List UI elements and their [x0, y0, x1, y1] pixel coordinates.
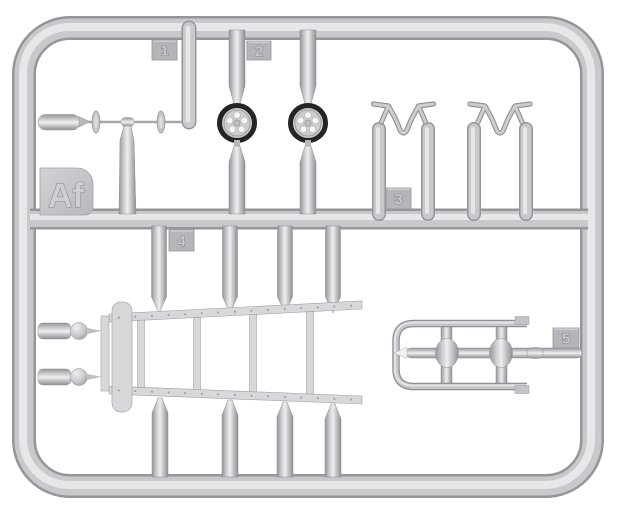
- tag-label: 1: [160, 43, 168, 60]
- wheel-hole: [305, 112, 312, 119]
- clip-part-2: [470, 104, 530, 214]
- wheel-hole: [300, 126, 307, 133]
- pin-gate: [87, 374, 102, 380]
- sprue-illustration: 1 2 3 4 5 Af: [0, 0, 620, 517]
- ladder-rung: [138, 320, 145, 388]
- wheel-hub: [305, 120, 311, 126]
- ball-pin-part-1: [38, 323, 102, 340]
- ladder-left-rail: [101, 316, 109, 391]
- barrel-part: [152, 226, 167, 313]
- tag-label: 4: [177, 233, 186, 250]
- flange-disc-core: [159, 116, 163, 129]
- part-tag-4: 4: [169, 230, 194, 251]
- vertical-runner: [188, 28, 189, 122]
- axle-bulge: [490, 339, 513, 368]
- wheel-hole: [241, 117, 248, 124]
- sprue-canvas: 1 2 3 4 5 Af: [0, 0, 620, 517]
- center-drop-sprue: [119, 126, 136, 214]
- wheel-top-sprue: [300, 30, 316, 104]
- wheel-bottom-sprue: [229, 146, 245, 214]
- tag-label: 5: [562, 331, 570, 348]
- wheel-hub: [234, 120, 240, 126]
- ladder-rung: [194, 317, 201, 389]
- sprue-code-label: Af: [48, 177, 85, 215]
- cylinder-part: [152, 398, 168, 477]
- rod-center-bulge: [121, 118, 134, 127]
- main-runner: [30, 217, 588, 219]
- part-tag-2: 2: [247, 41, 271, 60]
- flange-disc-core: [94, 116, 98, 129]
- wheel-hole: [226, 117, 233, 124]
- bracket-end-tab: [515, 386, 529, 394]
- part-tag-5: 5: [553, 328, 579, 348]
- tag-label: 2: [255, 43, 263, 60]
- wheel-top-sprue: [229, 30, 245, 104]
- pin-ball: [71, 323, 88, 340]
- barrel-part: [326, 226, 341, 313]
- ladder-end-plate: [112, 302, 132, 412]
- axle-bulge: [436, 339, 459, 368]
- ladder-rung: [250, 314, 257, 392]
- cylinder-parts: [152, 398, 341, 477]
- ladder-rung: [307, 312, 314, 395]
- ladder-frame-part: [101, 301, 362, 412]
- bulb-taper: [79, 117, 90, 128]
- part-tag-3: 3: [386, 188, 411, 209]
- cylinder-part: [222, 400, 238, 477]
- tag-label: 3: [394, 191, 402, 208]
- wheel-hole: [238, 126, 245, 133]
- part-tag-1: 1: [152, 40, 177, 60]
- barrel-part: [278, 226, 293, 313]
- rod-end-bulb: [38, 115, 80, 131]
- wheel-hole: [297, 117, 304, 124]
- wheel-part-2: [291, 30, 326, 214]
- sprue-code-tab: Af: [40, 168, 93, 215]
- wheel-hole: [312, 117, 319, 124]
- pin-ball: [71, 369, 88, 386]
- pin-body: [38, 369, 71, 385]
- cylinder-part: [277, 402, 293, 477]
- wheel-hole: [234, 112, 241, 119]
- pin-gate: [87, 328, 102, 334]
- wheel-hole: [229, 126, 236, 133]
- barrel-part: [223, 226, 238, 313]
- wheel-hole: [309, 126, 316, 133]
- cylinder-part: [325, 404, 341, 477]
- wheel-bottom-sprue: [300, 146, 316, 214]
- pin-body: [38, 323, 71, 339]
- ball-pin-part-2: [38, 369, 102, 386]
- axle-collar: [527, 348, 543, 359]
- bracket-end-tab: [515, 317, 529, 325]
